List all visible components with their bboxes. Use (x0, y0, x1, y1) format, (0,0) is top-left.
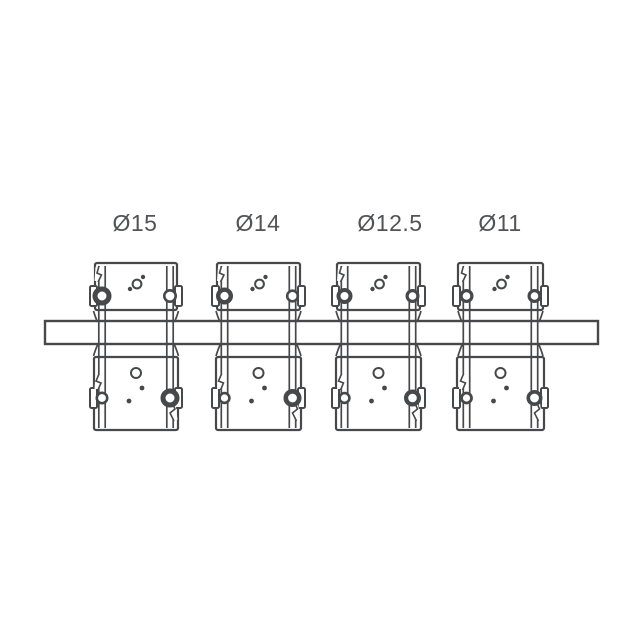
pin-hole-circle (133, 280, 142, 289)
pin-hole-dot (491, 399, 496, 404)
gap-flare-bottom (297, 345, 301, 356)
clamp-bolt-top-left (461, 291, 472, 302)
pin-hole-dot (492, 287, 496, 291)
pin-hole-dot (128, 287, 132, 291)
gap-flare-bottom (336, 345, 340, 356)
clamp-bolt-bottom-left (220, 393, 230, 403)
gap-flare-bottom (539, 345, 543, 356)
diagram-stage: Ø15Ø14Ø12.5Ø11 (0, 0, 640, 640)
clamp-bolt-top-right (529, 291, 540, 302)
gap-flare-bottom (175, 345, 179, 356)
pin-hole-dot (263, 275, 267, 279)
pin-hole-circle (255, 280, 264, 289)
clamp-bolt-bottom-right (163, 391, 177, 405)
pin-hole-circle (254, 368, 264, 378)
clamp-bolt-top-left (218, 290, 231, 303)
pin-hole-dot (370, 287, 374, 291)
diameter-label-2: Ø12.5 (357, 210, 422, 236)
pin-hole-circle (497, 280, 506, 289)
pin-hole-dot (250, 287, 254, 291)
gap-flare-bottom (216, 345, 220, 356)
clamp-bolt-bottom-left (340, 393, 350, 403)
pin-hole-dot (504, 386, 509, 391)
bolt-lug (453, 286, 460, 306)
pin-hole-dot (141, 275, 145, 279)
diameter-label-0: Ø15 (113, 210, 158, 236)
bolt-lug (332, 388, 339, 408)
pin-hole-dot (369, 399, 374, 404)
pin-hole-dot (383, 275, 387, 279)
pin-hole-circle (496, 368, 506, 378)
gap-flare-bottom (417, 345, 421, 356)
pin-hole-dot (262, 386, 267, 391)
clamp-bolt-top-left (339, 290, 351, 302)
clamp-bolt-bottom-right (528, 392, 540, 404)
pin-hole-dot (382, 386, 387, 391)
mounting-rail (45, 321, 598, 344)
diagram-canvas: Ø15Ø14Ø12.5Ø11 (0, 0, 640, 640)
diameter-label-1: Ø14 (236, 210, 281, 236)
gap-flare-bottom (458, 345, 462, 356)
diameter-label-3: Ø11 (478, 210, 521, 236)
clamp-bolt-top-left (95, 289, 109, 303)
pin-hole-circle (374, 368, 384, 378)
clamp-bolt-top-right (287, 291, 298, 302)
clamp-bolt-bottom-left (97, 393, 107, 403)
pin-hole-dot (249, 399, 254, 404)
bolt-lug (453, 388, 460, 408)
clamp-bolt-bottom-right (286, 391, 299, 404)
pin-hole-dot (127, 399, 132, 404)
bolt-lug (212, 388, 219, 408)
clamp-bolt-top-right (164, 290, 175, 301)
pin-hole-dot (140, 386, 145, 391)
gap-flare-bottom (94, 345, 98, 356)
clamp-bolt-top-right (407, 291, 418, 302)
clamp-bolt-bottom-right (406, 392, 419, 405)
pin-hole-dot (505, 275, 509, 279)
pin-hole-circle (131, 368, 141, 378)
pin-hole-circle (375, 280, 384, 289)
bolt-lug (541, 286, 548, 306)
clamp-bolt-bottom-left (462, 393, 472, 403)
